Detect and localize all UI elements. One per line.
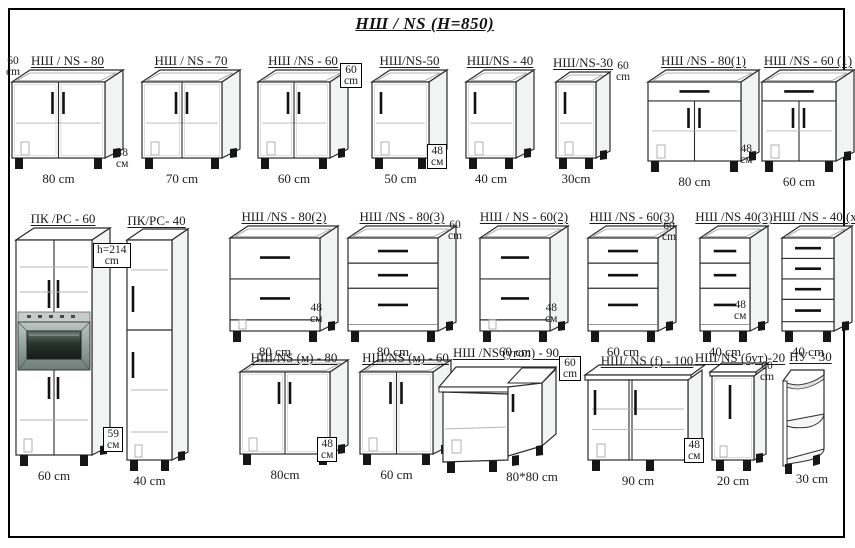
- cabinet-width-label: 30cm: [562, 171, 591, 187]
- dimension-text: см: [688, 451, 700, 462]
- catalog-sheet: НШ / NS (H=850) НШ / NS - 8080 cmНШ / NS…: [0, 0, 855, 548]
- dimension-label: 60cm: [559, 356, 581, 381]
- dimension-text: 60: [760, 361, 774, 372]
- cabinet-model-label: НШ / NS - 80: [31, 53, 104, 69]
- dimension-text: h=214: [97, 245, 127, 256]
- dimension-label: 59см: [103, 427, 123, 452]
- dimension-text: cm: [760, 372, 774, 383]
- dimension-label: 60cm: [760, 361, 774, 382]
- dimension-text: 48: [545, 303, 557, 314]
- cabinet-width-label: 80 cm: [678, 174, 710, 190]
- dimension-text: cm: [97, 256, 127, 267]
- dimension-label: 48см: [427, 144, 447, 169]
- cabinet-width-label: 80cm: [271, 467, 300, 483]
- dimension-label: 60cm: [448, 220, 462, 241]
- dimension-text: см: [107, 440, 119, 451]
- cabinet-ns-m-60: [360, 360, 451, 465]
- dimension-label: 48см: [317, 437, 337, 462]
- dimension-label: 48см: [734, 300, 746, 321]
- dimension-text: 60: [448, 220, 462, 231]
- cabinet-model-label: НШ/NS-50: [379, 53, 439, 69]
- dimension-text: cm: [616, 72, 630, 83]
- cabinet-ns-60: [258, 70, 348, 169]
- dimension-text: 60: [344, 65, 358, 76]
- dimension-text: cm: [448, 231, 462, 242]
- cabinet-model-label: НШ /NS - 60: [268, 53, 338, 69]
- cabinet-diagram: [0, 0, 855, 548]
- cabinet-ns-80: [12, 70, 123, 169]
- cabinet-width-label: 60 cm: [278, 171, 310, 187]
- cabinet-width-label: 50 cm: [384, 171, 416, 187]
- cabinet-width-label: 60 cm: [38, 468, 70, 484]
- cabinet-ns-60-3: [588, 226, 676, 342]
- dimension-label: 48см: [740, 144, 752, 165]
- dimension-label: 60cm: [340, 63, 362, 88]
- page-title: НШ / NS (H=850): [355, 14, 494, 34]
- cabinet-width-label: 40 cm: [133, 473, 165, 489]
- cabinet-width-label: 70 cm: [166, 171, 198, 187]
- dimension-text: 48: [116, 148, 128, 159]
- cabinet-ns-40: [466, 70, 534, 169]
- dimension-text: cm: [344, 76, 358, 87]
- cabinet-nu-30: [783, 370, 824, 474]
- dimension-label: 48см: [545, 303, 557, 324]
- dimension-text: см: [321, 450, 333, 461]
- dimension-text: см: [545, 314, 557, 325]
- cabinet-width-label: 60 cm: [783, 174, 815, 190]
- cabinet-ns-ugol-90: [439, 367, 556, 473]
- cabinet-pk-40: [127, 229, 188, 471]
- dimension-label: 60cm: [662, 221, 676, 242]
- cabinet-model-label: НШ /NS - 80(1): [661, 53, 746, 69]
- cabinet-model-label: НШ / NS - 70: [154, 53, 227, 69]
- cabinet-ns-80-2: [230, 226, 338, 342]
- cabinet-width-label: 20 cm: [717, 473, 749, 489]
- dimension-text: см: [310, 314, 322, 325]
- dimension-text: 60: [616, 61, 630, 72]
- cabinet-ns-80-3: [348, 226, 456, 342]
- cabinet-width-label: 80*80 cm: [506, 469, 558, 485]
- dimension-text: 48: [688, 440, 700, 451]
- cabinet-model-label: НШ/NS (м) - 80: [251, 350, 338, 366]
- dimension-text: 48: [321, 439, 333, 450]
- dimension-label: 60cm: [6, 56, 20, 77]
- cabinet-model-label: НШ /NS - 80(2): [242, 209, 327, 225]
- cabinet-width-label: 80 cm: [42, 171, 74, 187]
- cabinet-model-label: НШ / NS - 60(2): [480, 209, 568, 225]
- dimension-text: см: [734, 311, 746, 322]
- dimension-text: cm: [662, 232, 676, 243]
- cabinet-model-label: НШ /NS 40(3): [695, 209, 772, 225]
- dimension-label: 48см: [310, 303, 322, 324]
- dimension-text: см: [740, 155, 752, 166]
- cabinet-width-label: 40 cm: [475, 171, 507, 187]
- cabinet-model-label: НШ/NS-30: [553, 55, 613, 71]
- dimension-text: 60: [662, 221, 676, 232]
- cabinet-ns-60-1: [762, 70, 854, 172]
- dimension-label: h=214cm: [93, 243, 131, 268]
- cabinet-model-label: НШ/NS (м) - 60: [362, 350, 449, 366]
- cabinet-model-label: НШ/NS - 40: [467, 53, 534, 69]
- cabinet-width-label: 90 cm: [622, 473, 654, 489]
- cabinet-model-label: НШ/ NS (f) - 100: [601, 353, 694, 369]
- cabinet-model-label: НШ /NS - 40 (x): [773, 209, 855, 225]
- dimension-text: cm: [563, 369, 577, 380]
- cabinet-width-label: 60 cm: [380, 467, 412, 483]
- dimension-label: 48см: [116, 148, 128, 169]
- dimension-text: 48: [431, 146, 443, 157]
- dimension-text: 48: [310, 303, 322, 314]
- cabinet-ns-40-3: [700, 226, 768, 342]
- dimension-text: 48: [740, 144, 752, 155]
- dimension-text: 48: [734, 300, 746, 311]
- dimension-text: 59: [107, 429, 119, 440]
- cabinet-ns-70: [142, 70, 240, 169]
- cabinet-model-label: ПК/РС- 40: [127, 213, 185, 229]
- cabinet-ns-60-2: [480, 226, 568, 342]
- cabinet-model-label: НУ - 30: [789, 349, 831, 365]
- cabinet-ns-30: [556, 72, 610, 169]
- dimension-text: cm: [6, 67, 20, 78]
- dimension-text: см: [116, 159, 128, 170]
- dimension-label: 48см: [684, 438, 704, 463]
- cabinet-model-label: НШ /NS (угол) - 90: [453, 345, 559, 361]
- dimension-label: 60cm: [616, 61, 630, 82]
- dimension-text: 60: [563, 358, 577, 369]
- dimension-text: 60: [6, 56, 20, 67]
- cabinet-model-label: ПК /РС - 60: [31, 211, 96, 227]
- cabinet-width-label: 30 cm: [796, 471, 828, 487]
- cabinet-model-label: НШ /NS - 80(3): [360, 209, 445, 225]
- cabinet-ns-40-x: [782, 226, 852, 342]
- dimension-text: см: [431, 157, 443, 168]
- cabinet-model-label: НШ /NS - 60 (1): [764, 53, 852, 69]
